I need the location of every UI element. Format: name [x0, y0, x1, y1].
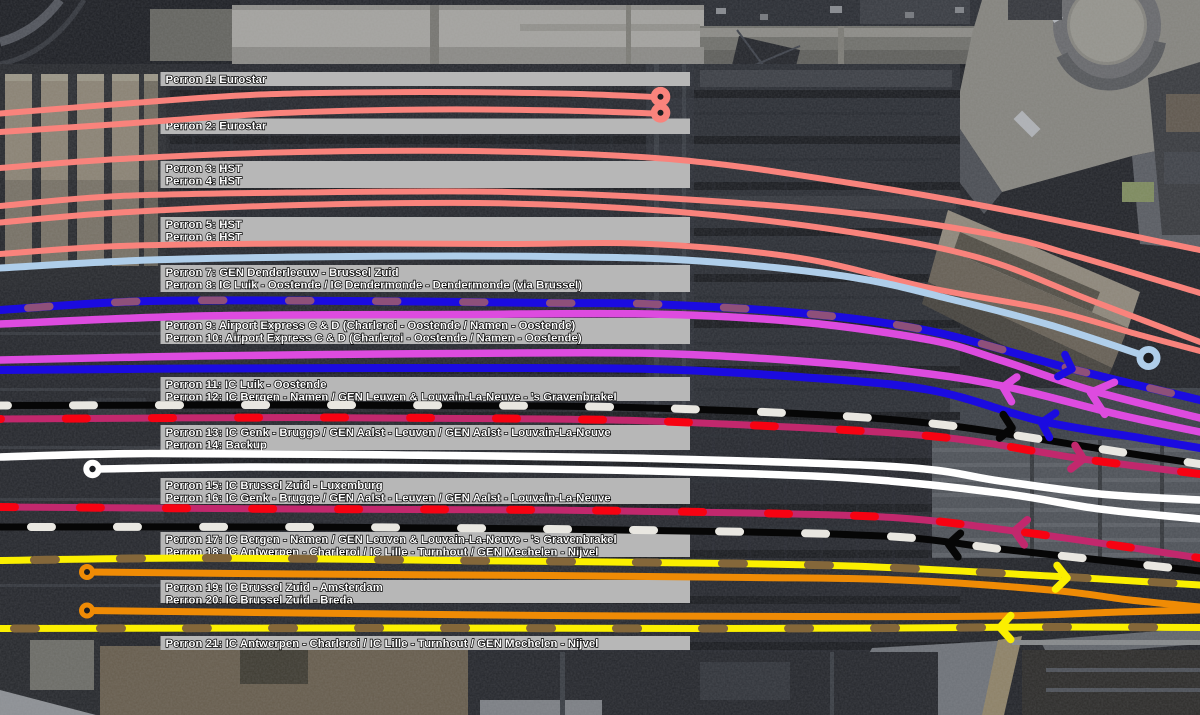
svg-text:Perron 17: IC Bergen - Namen /: Perron 17: IC Bergen - Namen / GEN Leuve… [166, 534, 617, 546]
svg-text:Perron 20: IC Brussel Zuid - B: Perron 20: IC Brussel Zuid - Breda [166, 595, 354, 607]
svg-text:Perron 8: IC Luik - Oostende /: Perron 8: IC Luik - Oostende / IC Dender… [166, 280, 583, 292]
svg-text:Perron 3: HST: Perron 3: HST [166, 163, 243, 175]
svg-text:Perron 4: HST: Perron 4: HST [166, 176, 243, 188]
svg-text:Perron 9: Airport Express C &: Perron 9: Airport Express C & D (Charler… [166, 320, 576, 332]
svg-text:Perron 21: IC Antwerpen - Char: Perron 21: IC Antwerpen - Charleroi / IC… [166, 638, 599, 650]
svg-text:Perron 11: IC Luik - Oostende: Perron 11: IC Luik - Oostende [166, 379, 327, 391]
svg-text:Perron 7: GEN Denderleeuw - Br: Perron 7: GEN Denderleeuw - Brussel Zuid [166, 267, 399, 279]
svg-text:Perron 14: Backup: Perron 14: Backup [166, 440, 268, 452]
svg-text:Perron 16: IC Genk - Brugge /: Perron 16: IC Genk - Brugge / GEN Aalst … [166, 493, 611, 505]
svg-text:Perron 13: IC Genk - Brugge /: Perron 13: IC Genk - Brugge / GEN Aalst … [166, 427, 611, 439]
svg-text:Perron 15: IC Brussel Zuid - L: Perron 15: IC Brussel Zuid - Luxemburg [166, 480, 383, 492]
svg-text:Perron 1: Eurostar: Perron 1: Eurostar [166, 74, 267, 86]
svg-text:Perron 10: Airport Express C &: Perron 10: Airport Express C & D (Charle… [166, 333, 582, 345]
svg-text:Perron 19: IC Brussel Zuid - A: Perron 19: IC Brussel Zuid - Amsterdam [166, 582, 383, 594]
svg-text:Perron 5: HST: Perron 5: HST [166, 219, 243, 231]
